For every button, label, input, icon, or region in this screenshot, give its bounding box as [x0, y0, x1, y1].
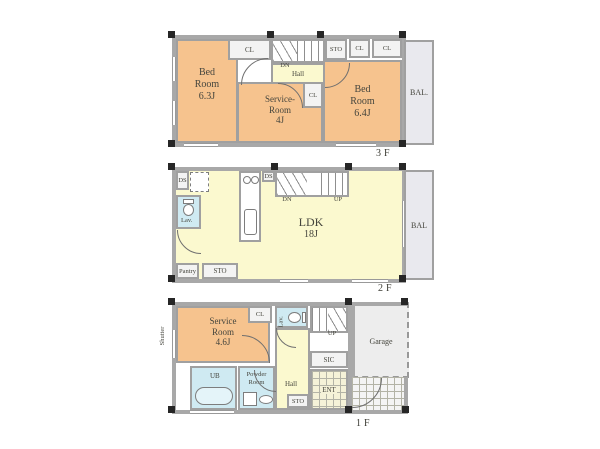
pillar: [168, 406, 175, 413]
shutter-label: Shutter: [159, 316, 169, 356]
garage-label: Garage: [369, 337, 392, 346]
bedroom2-label: Bed: [325, 84, 400, 96]
pillar: [345, 163, 352, 170]
storage-box: STO: [202, 263, 238, 279]
floor-label-3f: 3F: [376, 148, 393, 159]
room-ldk-label: LDK 18J: [276, 215, 346, 241]
stove-burner-icon: [251, 176, 259, 184]
storage-label: STO: [292, 398, 304, 405]
pillar: [399, 163, 406, 170]
pillar: [271, 163, 278, 170]
closet-box: CL: [372, 39, 402, 58]
stairs-winder: [273, 41, 297, 61]
balcony-label: BAL: [411, 221, 427, 230]
closet-box: CL: [248, 306, 272, 323]
pillar: [401, 298, 408, 305]
window: [336, 143, 376, 147]
closet-box: CL: [228, 39, 271, 60]
window: [172, 330, 176, 358]
pillar: [399, 275, 406, 282]
stairs-treads: [312, 308, 328, 331]
stairs-dn-label: DN: [277, 62, 293, 70]
closet-label: CL: [309, 92, 317, 99]
balcony-label: BAL.: [410, 88, 428, 97]
duct-space-label: DS: [264, 173, 272, 180]
bedroom2-size: 6.4J: [325, 108, 400, 120]
window: [184, 143, 218, 147]
stairs-2f: [275, 171, 349, 197]
hall-label: Hall: [285, 380, 297, 388]
lavatory-label: Lav.: [181, 217, 192, 224]
room-lavatory-2f: Lav.: [176, 195, 201, 229]
pillar: [399, 31, 406, 38]
hall-label: Hall: [292, 70, 304, 78]
room-entrance: ENT: [310, 369, 348, 410]
floorplan-canvas: Bed Room 6.3J CL Hall STO CL CL Bed Room: [0, 0, 600, 449]
closet-box: CL: [303, 82, 323, 108]
pillar: [168, 163, 175, 170]
bathtub-icon: [195, 387, 233, 405]
lavatory-label: Lav.: [278, 308, 285, 328]
closet-label: CL: [245, 46, 254, 54]
floor-label-2f: 2F: [378, 283, 395, 294]
storage-label: STO: [213, 267, 226, 275]
balcony-2f: BAL: [404, 170, 434, 280]
pillar: [345, 298, 352, 305]
duct-space-box: DS: [176, 171, 189, 190]
closet-box: CL: [349, 39, 370, 58]
bedroom1-label: Bed: [178, 67, 236, 79]
window: [190, 410, 234, 414]
storage-label: STO: [330, 46, 342, 53]
shoe-closet-label: SIC: [324, 356, 335, 364]
room-lavatory-1f: Lav.: [275, 306, 308, 328]
toilet-icon: [302, 312, 306, 323]
stairs-winder: [328, 308, 348, 331]
service-room-label: Room: [178, 327, 268, 338]
stove-burner-icon: [243, 176, 251, 184]
stairs-1f: [310, 306, 348, 333]
duct-space-label: DS: [178, 177, 186, 184]
closet-label: CL: [355, 45, 363, 52]
stairs-up-label: UP: [330, 196, 346, 204]
storage-box: STO: [287, 394, 309, 408]
storage-box: STO: [325, 39, 347, 60]
stairs-treads: [321, 173, 349, 195]
pillar: [345, 406, 352, 413]
pantry-box: Pantry: [176, 263, 199, 279]
bath-label: UB: [210, 372, 220, 380]
duct-space-box: DS: [262, 171, 275, 182]
window: [172, 57, 176, 81]
service-room-size: 4J: [239, 115, 321, 126]
kitchen-counter: [239, 171, 261, 242]
pillar: [168, 275, 175, 282]
entrance-label: ENT: [321, 386, 337, 394]
pillar: [399, 140, 406, 147]
pillar: [317, 31, 324, 38]
stairs-winder: [277, 173, 307, 195]
stairs-dn-label: DN: [279, 196, 295, 204]
closet-label: CL: [256, 311, 264, 318]
skylight-icon: [190, 172, 209, 192]
sink-icon: [259, 395, 273, 404]
pillar: [168, 298, 175, 305]
pillar: [402, 406, 409, 413]
floor-plan-2f: LDK 18J DS Lav. DS Pantry STO: [172, 167, 406, 283]
shoe-closet-box: SIC: [310, 351, 348, 368]
pillar: [168, 31, 175, 38]
stairs-3f: [271, 39, 325, 63]
ldk-label: LDK: [276, 215, 346, 229]
balcony-3f: BAL.: [404, 40, 434, 145]
stairs-up-label: UP: [324, 330, 340, 338]
window: [172, 101, 176, 125]
pillar: [168, 140, 175, 147]
bedroom1-label: Room: [178, 79, 236, 91]
pantry-label: Pantry: [179, 268, 196, 275]
kitchen-sink-icon: [244, 209, 257, 235]
bedroom2-label: Room: [325, 96, 400, 108]
closet-label: CL: [383, 45, 391, 52]
floor-label-1f: 1F: [356, 418, 373, 429]
window: [280, 279, 308, 283]
washer-icon: [243, 392, 257, 406]
stairs-treads: [297, 41, 325, 61]
room-garage: Garage: [352, 302, 409, 378]
pillar: [267, 31, 274, 38]
room-unit-bath: UB: [190, 366, 237, 410]
toilet-icon: [183, 204, 194, 216]
toilet-icon: [288, 312, 301, 323]
bedroom1-size: 6.3J: [178, 91, 236, 103]
ldk-size: 18J: [276, 229, 346, 241]
